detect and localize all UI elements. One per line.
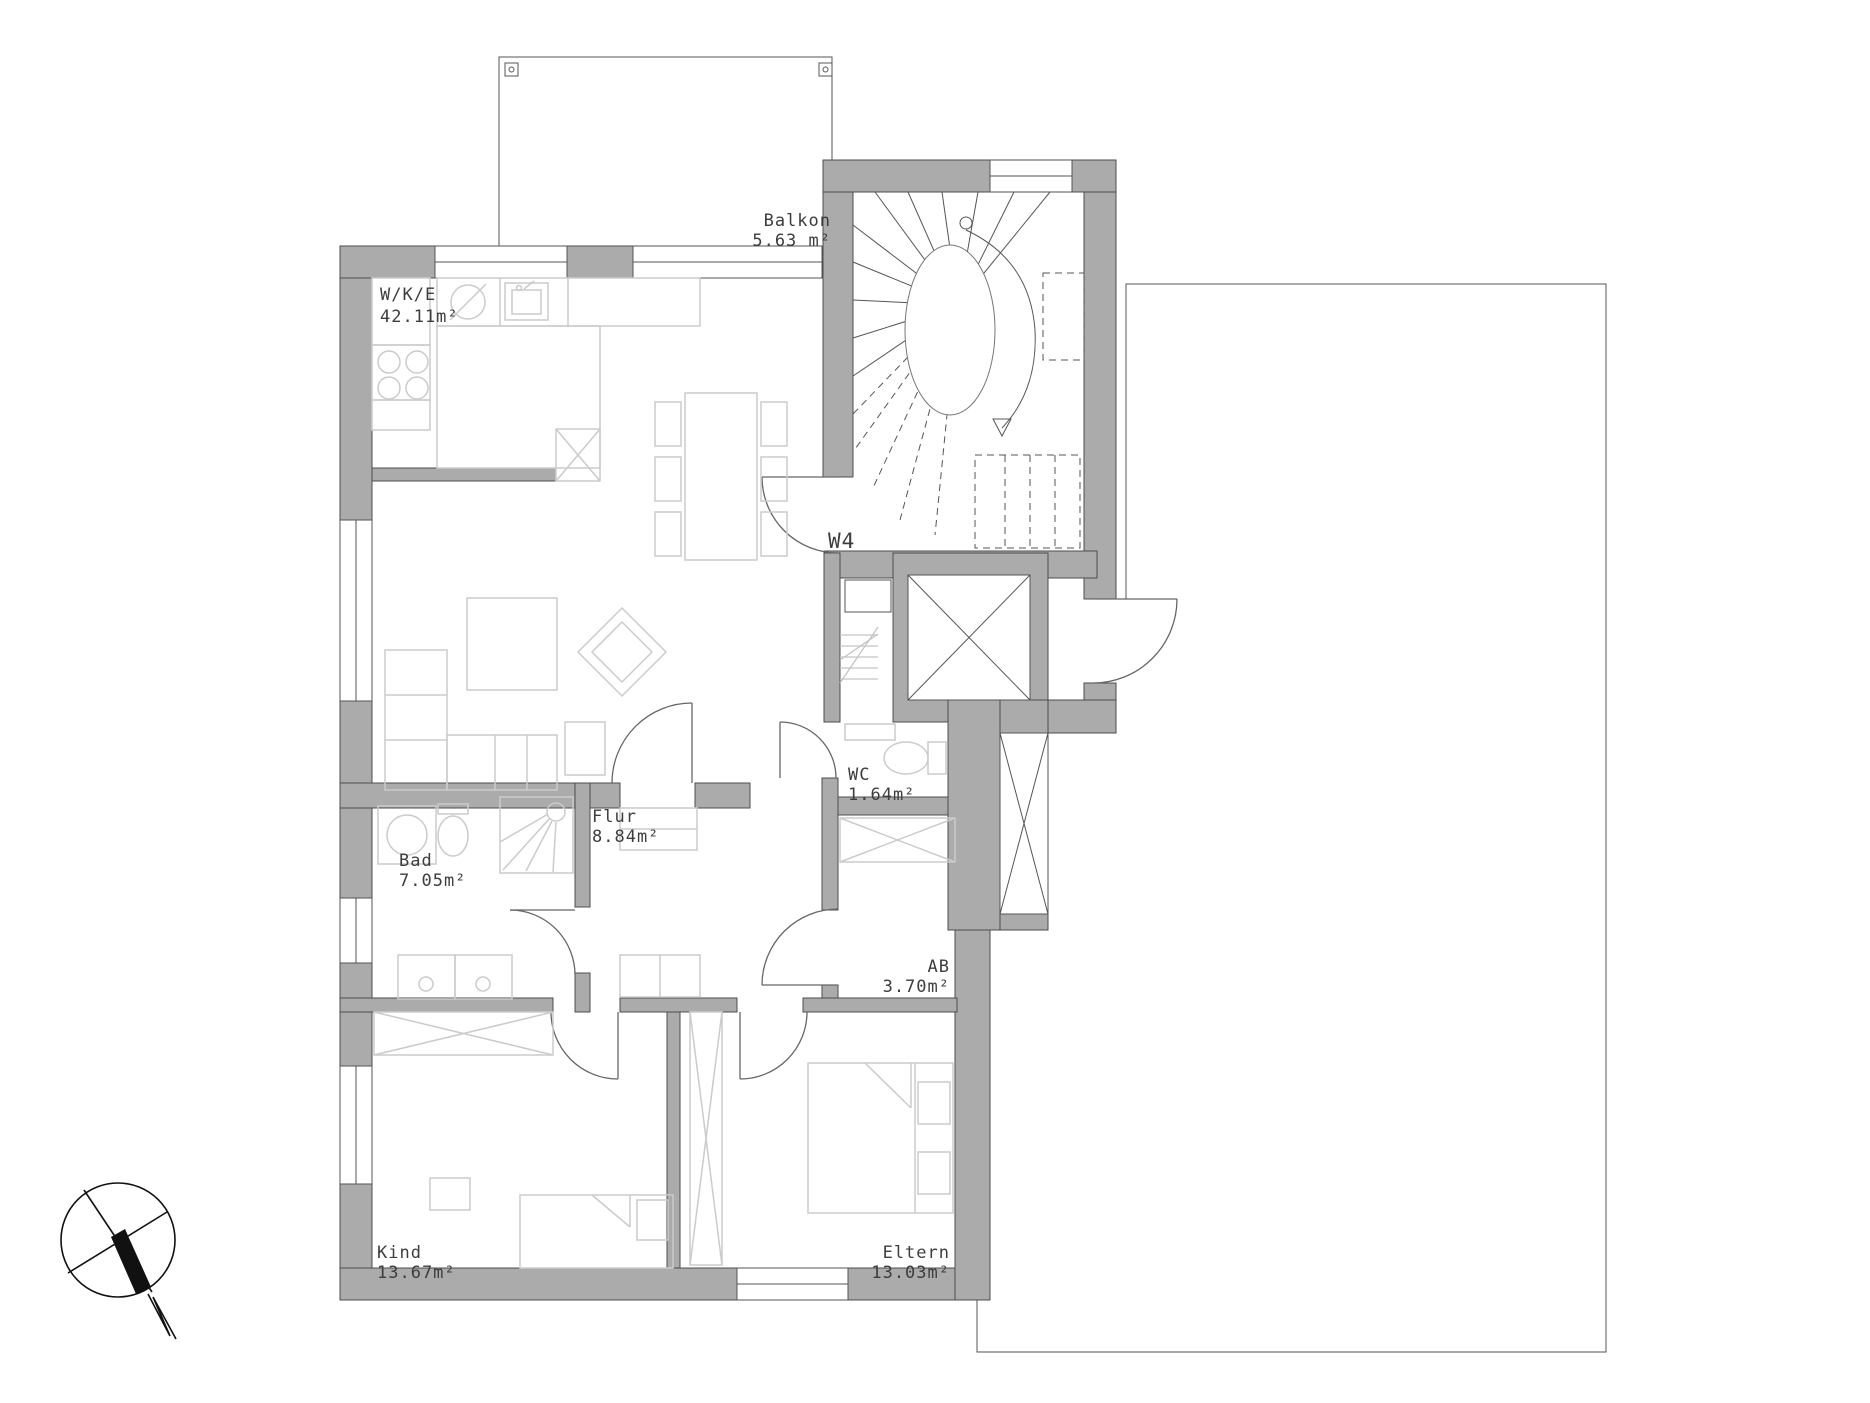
kind-furniture xyxy=(374,1012,673,1268)
label-eltern-area: 13.03m² xyxy=(871,1263,950,1283)
kind-bed xyxy=(520,1195,673,1268)
ab-door xyxy=(762,909,838,985)
label-flur-name: Flur xyxy=(592,807,637,827)
bad-furniture xyxy=(378,797,573,999)
stair-eye xyxy=(905,245,995,415)
kind-pillow xyxy=(637,1200,668,1240)
kind-wardrobe xyxy=(374,1012,553,1055)
label-ab-name: AB xyxy=(928,957,950,977)
label-kind-name: Kind xyxy=(377,1243,422,1263)
wc-door xyxy=(780,722,836,778)
label-flur-area: 8.84m² xyxy=(592,827,659,847)
wc-sink xyxy=(845,724,895,740)
window-staircase-top xyxy=(990,160,1072,192)
entrance-door-w4 xyxy=(762,477,838,553)
side-table-diamond xyxy=(578,608,666,696)
dining-table xyxy=(685,393,757,560)
window-eltern-bottom xyxy=(737,1268,848,1300)
label-ab-area: 3.70m² xyxy=(883,977,950,997)
label-balkon-area: 5.63 m² xyxy=(752,231,831,251)
window-kind-left xyxy=(340,1066,372,1184)
window-top-1 xyxy=(435,246,567,278)
neighbor-entrance-door xyxy=(1093,599,1177,683)
kind-stool xyxy=(430,1178,470,1210)
kitchen-appliance-x xyxy=(556,429,600,481)
double-washbasin-icon xyxy=(398,955,512,999)
eltern-furniture xyxy=(690,1012,953,1265)
floorplan-canvas: Balkon 5.63 m² W/K/E 42.11m² W4 WC 1.64m… xyxy=(0,0,1870,1403)
sofa-vertical xyxy=(385,650,447,790)
north-arrow-compass-icon xyxy=(61,1183,176,1339)
staircase xyxy=(853,192,1084,548)
neighbor-unit-outline xyxy=(977,284,1606,1352)
room-labels: Balkon 5.63 m² W/K/E 42.11m² W4 WC 1.64m… xyxy=(377,211,950,1283)
toilet-wc-icon xyxy=(884,742,946,774)
eltern-wardrobe xyxy=(690,1012,722,1265)
cooktop-icon xyxy=(372,345,430,400)
toilet-bad-icon xyxy=(438,804,468,856)
utility-shaft xyxy=(1000,733,1048,914)
label-wke-area: 42.11m² xyxy=(380,307,459,327)
eltern-pillow-2 xyxy=(918,1152,950,1194)
kitchen-island xyxy=(437,326,600,468)
eltern-door xyxy=(740,1012,807,1079)
flur-door xyxy=(612,703,692,783)
window-living-left xyxy=(340,520,372,701)
living-furniture xyxy=(385,598,666,790)
sofa-horizontal xyxy=(447,735,557,790)
coffee-table xyxy=(467,598,557,690)
label-unit-title: W4 xyxy=(828,529,855,553)
label-balkon-name: Balkon xyxy=(764,211,831,231)
label-bad-name: Bad xyxy=(399,851,433,871)
bad-door xyxy=(510,910,575,975)
label-eltern-name: Eltern xyxy=(883,1243,950,1263)
floorplan-svg: Balkon 5.63 m² W/K/E 42.11m² W4 WC 1.64m… xyxy=(0,0,1870,1403)
duct-box xyxy=(845,580,891,612)
ab-shelf xyxy=(840,818,955,862)
sideboard xyxy=(565,722,605,775)
window-bad-left xyxy=(340,898,372,963)
label-bad-area: 7.05m² xyxy=(399,871,466,891)
label-wc-name: WC xyxy=(848,765,870,785)
vent-shaft-icon xyxy=(840,627,878,683)
sink-icon xyxy=(505,281,548,320)
label-wke-name: W/K/E xyxy=(380,285,436,305)
kind-door xyxy=(551,1012,618,1079)
label-kind-area: 13.67m² xyxy=(377,1263,456,1283)
label-wc-area: 1.64m² xyxy=(848,785,915,805)
elevator-shaft xyxy=(908,575,1030,700)
eltern-bed xyxy=(808,1063,953,1213)
eltern-pillow-1 xyxy=(918,1082,950,1124)
